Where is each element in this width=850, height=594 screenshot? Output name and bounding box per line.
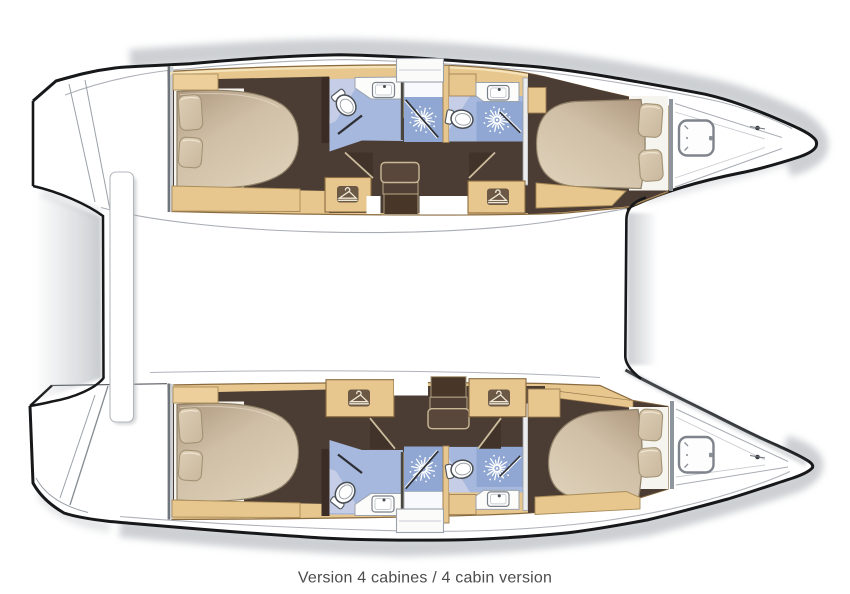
svg-text:Version 4 cabines / 4 cabin ve: Version 4 cabines / 4 cabin version xyxy=(298,570,552,587)
